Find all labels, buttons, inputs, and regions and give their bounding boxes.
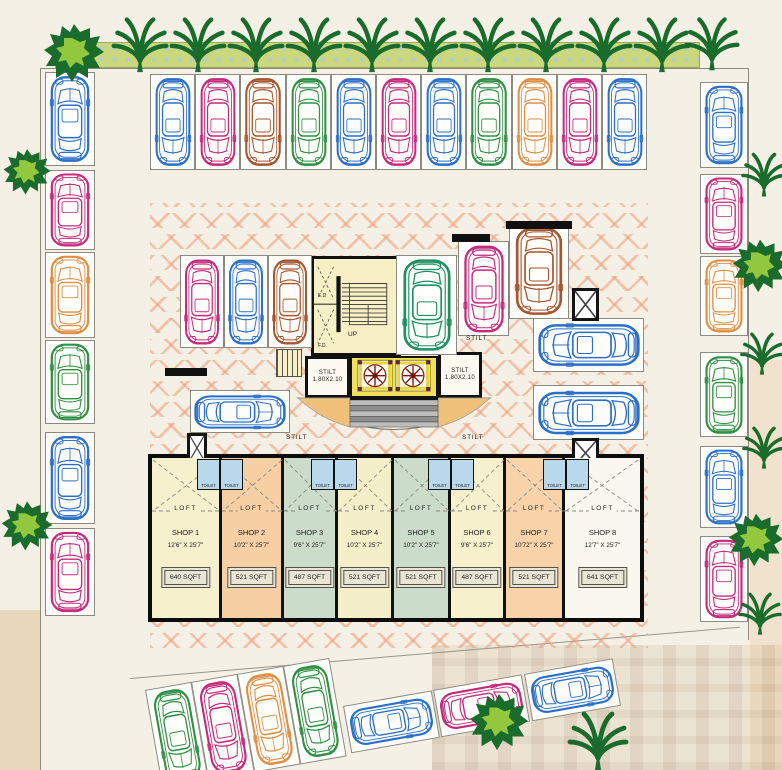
car-icon <box>536 390 640 435</box>
car-icon <box>290 77 327 167</box>
shop-dimensions: 10'2" X 25'7" <box>394 542 448 549</box>
palm-tree <box>226 14 286 74</box>
toilet-cell: TOILET <box>451 459 474 490</box>
palm-tree <box>566 708 630 770</box>
car <box>514 226 563 316</box>
bush <box>727 510 782 568</box>
toilet-label: TOILET <box>429 483 450 488</box>
car <box>606 77 643 167</box>
shop-name: SHOP 8 <box>565 528 640 537</box>
car-icon <box>335 77 372 167</box>
parking-stall <box>240 74 286 170</box>
shop-area-box: 521 SQFT <box>343 570 386 585</box>
side-steps <box>276 349 302 377</box>
staircase-drawing <box>314 259 398 353</box>
palm-tree <box>574 14 634 74</box>
car <box>401 258 451 352</box>
car <box>380 77 417 167</box>
wall-stub <box>165 368 207 376</box>
palm-tree-icon <box>566 708 630 770</box>
parking-stall <box>396 255 457 355</box>
bush-icon <box>727 510 782 568</box>
parking-stall <box>45 340 95 424</box>
parking-stall <box>509 223 569 319</box>
shop-area-box: 521 SQFT <box>512 570 555 585</box>
shop-dimensions: 12'6" X 25'7" <box>152 542 219 549</box>
car <box>50 75 91 163</box>
car <box>463 244 505 333</box>
palm-tree-icon <box>168 14 228 74</box>
car-icon <box>228 258 264 345</box>
loft-label: LOFT <box>407 505 436 512</box>
palm-tree <box>739 330 782 376</box>
loft-label: LOFT <box>463 505 492 512</box>
parking-stall <box>45 72 95 166</box>
car <box>704 355 743 435</box>
car-icon <box>704 85 743 166</box>
parking-stall <box>268 255 312 348</box>
bush <box>2 146 52 196</box>
loft-label: LOFT <box>171 505 200 512</box>
staircase-block: E.D F.D. UP <box>311 256 401 356</box>
toilet-cell: TOILET <box>311 459 334 490</box>
palm-tree-icon <box>284 14 344 74</box>
shop-name: SHOP 2 <box>222 528 281 537</box>
shop-dimensions: 12'7" X 25'7" <box>565 542 640 549</box>
bush-icon <box>2 146 52 196</box>
stilt-cell-right-label: STILT <box>451 368 468 375</box>
toilet-cell: TOILET <box>334 459 357 490</box>
car <box>244 77 282 167</box>
shop-area-box: 487 SQFT <box>288 570 331 585</box>
loft-label: LOFT <box>520 505 549 512</box>
shop-area-box: 641 SQFT <box>581 570 624 585</box>
palm-tree-icon <box>683 14 741 72</box>
shop-name: SHOP 4 <box>338 528 391 537</box>
car-icon <box>50 75 91 163</box>
car-icon <box>199 77 236 167</box>
parking-stall <box>331 74 376 170</box>
palm-tree <box>458 14 518 74</box>
car-icon <box>272 258 308 345</box>
car-icon <box>50 531 91 614</box>
toilet-label: TOILET <box>567 483 588 488</box>
toilet-label: TOILET <box>544 483 565 488</box>
shop-dimensions: 9'6" X 25'7" <box>284 542 335 549</box>
car <box>272 258 308 345</box>
shop-dimensions: 10'72" X 25'7" <box>506 542 562 549</box>
car <box>704 85 743 166</box>
parking-stall <box>557 74 602 170</box>
car-icon <box>50 172 91 247</box>
car-icon <box>470 77 508 167</box>
stilt-area-label: STILT <box>286 434 307 441</box>
shop-dimensions: 10'2" X 25'7" <box>338 542 391 549</box>
car <box>50 255 91 336</box>
parking-stall <box>376 74 421 170</box>
shop-name: SHOP 5 <box>394 528 448 537</box>
car-icon <box>50 343 91 422</box>
car-icon <box>50 435 91 521</box>
car-icon <box>606 77 643 167</box>
parking-stall <box>150 74 195 170</box>
lift-cars-drawing <box>352 358 436 396</box>
car-icon <box>536 323 640 367</box>
shop-name: SHOP 1 <box>152 528 219 537</box>
palm-tree-icon <box>741 424 782 470</box>
parking-stall <box>421 74 466 170</box>
palm-tree-icon <box>739 330 782 376</box>
car <box>154 77 191 167</box>
palm-tree <box>110 14 170 74</box>
fire-duct-label: F.D. <box>318 343 327 349</box>
car-icon <box>193 394 287 429</box>
car-icon <box>516 77 553 167</box>
car-icon <box>244 77 282 167</box>
toilet-label: TOILET <box>198 483 219 488</box>
parking-stall <box>190 390 290 433</box>
car <box>50 343 91 422</box>
car <box>536 390 640 435</box>
parking-stall <box>45 252 95 338</box>
car-icon <box>425 77 462 167</box>
parking-stall <box>286 74 331 170</box>
bush <box>42 20 106 84</box>
parking-stall <box>180 255 224 348</box>
shop-area-box: 521 SQFT <box>230 570 273 585</box>
stilt-area-label: STILT <box>466 335 487 342</box>
palm-tree <box>683 14 741 72</box>
car <box>516 77 553 167</box>
toilet-label: TOILET <box>312 483 333 488</box>
toilet-cell: TOILET <box>428 459 451 490</box>
paper-edge-left <box>0 610 40 770</box>
shop-dimensions: 10'2" X 25'7" <box>222 542 281 549</box>
parking-stall <box>533 318 644 372</box>
wall-stub <box>506 221 572 229</box>
palm-tree-icon <box>458 14 518 74</box>
palm-tree-icon <box>574 14 634 74</box>
stair-up-label: UP <box>348 331 357 338</box>
electrical-duct-label: E.D <box>318 293 326 299</box>
palm-tree-icon <box>342 14 402 74</box>
loft-label: LOFT <box>588 505 617 512</box>
palm-tree <box>284 14 344 74</box>
car <box>561 77 598 167</box>
palm-tree-icon <box>740 150 782 198</box>
shop-name: SHOP 7 <box>506 528 562 537</box>
palm-tree-icon <box>110 14 170 74</box>
palm-tree <box>400 14 460 74</box>
car-icon <box>561 77 598 167</box>
bush <box>0 498 54 552</box>
stilt-cell-right-size: 1.80X2.10 <box>445 375 475 382</box>
bush-icon <box>0 498 54 552</box>
palm-tree-icon <box>400 14 460 74</box>
bush-icon <box>731 236 782 294</box>
car-icon <box>50 255 91 336</box>
palm-tree-icon <box>737 590 782 636</box>
car <box>50 172 91 247</box>
parking-stall <box>458 241 509 336</box>
car <box>50 435 91 521</box>
car-icon <box>154 77 191 167</box>
palm-tree <box>737 590 782 636</box>
stilt-cell-left-size: 1.80X2.10 <box>312 377 342 384</box>
shop-area-box: 487 SQFT <box>455 570 498 585</box>
toilet-label: TOILET <box>452 483 473 488</box>
car-icon <box>401 258 451 352</box>
car <box>184 258 220 345</box>
parking-stall <box>343 690 440 753</box>
stilt-cell-left: STILT 1.80X2.10 <box>305 356 350 398</box>
bush-icon <box>42 20 106 84</box>
car <box>199 77 236 167</box>
car <box>290 77 327 167</box>
duct-cross-icon <box>190 436 204 460</box>
car <box>228 258 264 345</box>
bush-icon <box>468 690 530 752</box>
palm-tree <box>740 150 782 198</box>
parking-stall <box>195 74 240 170</box>
palm-tree-icon <box>516 14 576 74</box>
bush <box>731 236 782 294</box>
car <box>335 77 372 167</box>
shop-name: SHOP 6 <box>451 528 503 537</box>
loft-label: LOFT <box>350 505 379 512</box>
palm-tree <box>741 424 782 470</box>
loft-label: LOFT <box>237 505 266 512</box>
shop-area-box: 521 SQFT <box>399 570 442 585</box>
palm-tree-icon <box>226 14 286 74</box>
car <box>346 695 436 748</box>
shop-name: SHOP 3 <box>284 528 335 537</box>
bush <box>468 690 530 752</box>
car <box>193 394 287 429</box>
car <box>536 323 640 367</box>
toilet-label: TOILET <box>335 483 356 488</box>
toilet-label: TOILET <box>221 483 242 488</box>
car <box>470 77 508 167</box>
loft-label: LOFT <box>295 505 324 512</box>
stilt-cell-left-label: STILT <box>319 370 336 377</box>
parking-stall <box>466 74 512 170</box>
palm-tree <box>516 14 576 74</box>
car-icon <box>346 695 436 748</box>
toilet-cell: TOILET <box>543 459 566 490</box>
toilet-cell: TOILET <box>566 459 589 490</box>
floor-plan-page: E.D F.D. UP STILT 1.80X2.10 STILT 1.80X2… <box>0 0 782 770</box>
car <box>425 77 462 167</box>
palm-tree <box>168 14 228 74</box>
toilet-cell: TOILET <box>220 459 243 490</box>
car-icon <box>184 258 220 345</box>
lift-block <box>350 356 438 398</box>
parking-stall <box>533 385 644 440</box>
parking-stall <box>45 170 95 250</box>
car-icon <box>463 244 505 333</box>
stilt-area-label: STILT <box>462 434 483 441</box>
duct-shaft <box>572 288 599 321</box>
shop-dimensions: 9'6" X 25'7" <box>451 542 503 549</box>
car <box>50 531 91 614</box>
stilt-cell-right: STILT 1.80X2.10 <box>438 352 482 398</box>
parking-stall <box>512 74 557 170</box>
duct-cross-icon <box>575 291 596 318</box>
shop-area-box: 640 SQFT <box>164 570 207 585</box>
parking-stall <box>224 255 268 348</box>
palm-tree <box>342 14 402 74</box>
toilet-cell: TOILET <box>197 459 220 490</box>
wall-stub <box>452 234 490 242</box>
car-icon <box>704 355 743 435</box>
parking-stall <box>602 74 647 170</box>
car-icon <box>380 77 417 167</box>
car-icon <box>514 226 563 316</box>
